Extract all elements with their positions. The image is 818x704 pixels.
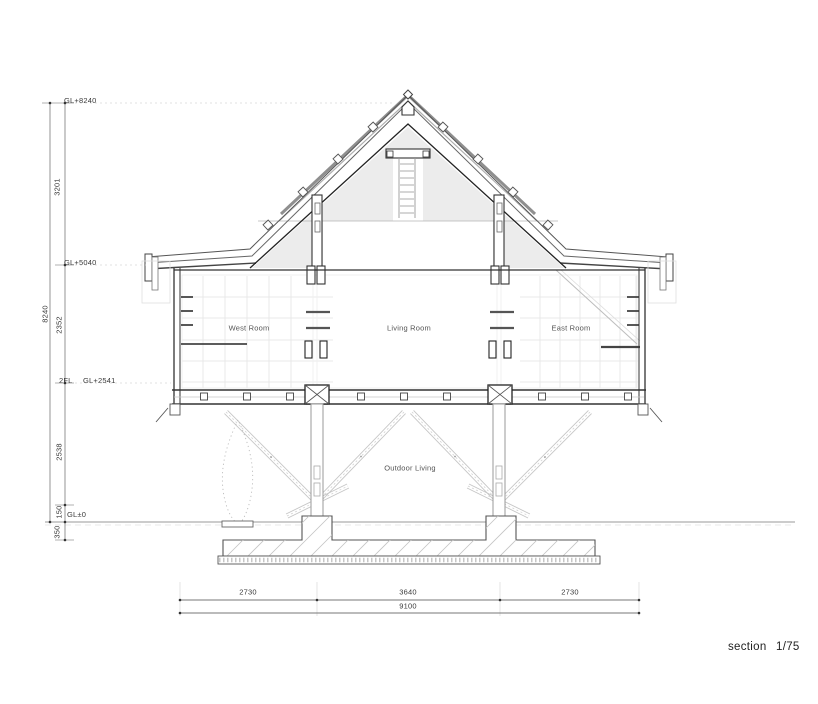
vdim-3201: 3201 <box>53 178 62 196</box>
plant-outline <box>222 420 252 525</box>
foundation-slab <box>200 510 630 564</box>
vdim-2352: 2352 <box>55 316 64 334</box>
dimension-ticks <box>49 102 641 615</box>
level-label-gl5040: GL+5040 <box>64 258 96 267</box>
hdim-total: 9100 <box>399 602 417 611</box>
vdim-8240: 8240 <box>41 305 50 323</box>
ridge-beam <box>402 101 414 115</box>
room-label-outdoor: Outdoor Living <box>384 464 436 473</box>
step-stone <box>222 521 253 527</box>
vdim-350: 350 <box>53 525 62 538</box>
collar-beam <box>386 149 430 158</box>
room-label-living: Living Room <box>387 324 431 333</box>
east-room-ladder <box>556 270 640 347</box>
hdim-left: 2730 <box>239 588 257 597</box>
level-label-gl2541: GL+2541 <box>83 376 115 385</box>
hdim-right: 2730 <box>561 588 579 597</box>
hdim-center: 3640 <box>399 588 417 597</box>
level-label-gl8240: GL+8240 <box>64 96 96 105</box>
level-label-gl0: GL±0 <box>67 510 86 519</box>
dimension-lines <box>42 103 639 616</box>
wall-shelves <box>181 297 639 344</box>
section-drawing <box>0 0 818 704</box>
drawing-scale: 1/75 <box>776 641 800 653</box>
drawing-title: section <box>728 641 767 653</box>
center-post-fittings <box>305 312 514 358</box>
room-label-east: East Room <box>552 324 591 333</box>
vdim-150: 150 <box>55 505 64 518</box>
level-label-2fl: 2FL <box>59 376 73 385</box>
pilotis-posts <box>311 404 505 517</box>
ground-line <box>45 521 795 527</box>
floor-joists <box>201 393 632 400</box>
architectural-section-sheet: GL+8240 GL+5040 2FL GL+2541 GL±0 3201 82… <box>0 0 818 704</box>
vdim-2538: 2538 <box>55 443 64 461</box>
room-label-west: West Room <box>229 324 270 333</box>
